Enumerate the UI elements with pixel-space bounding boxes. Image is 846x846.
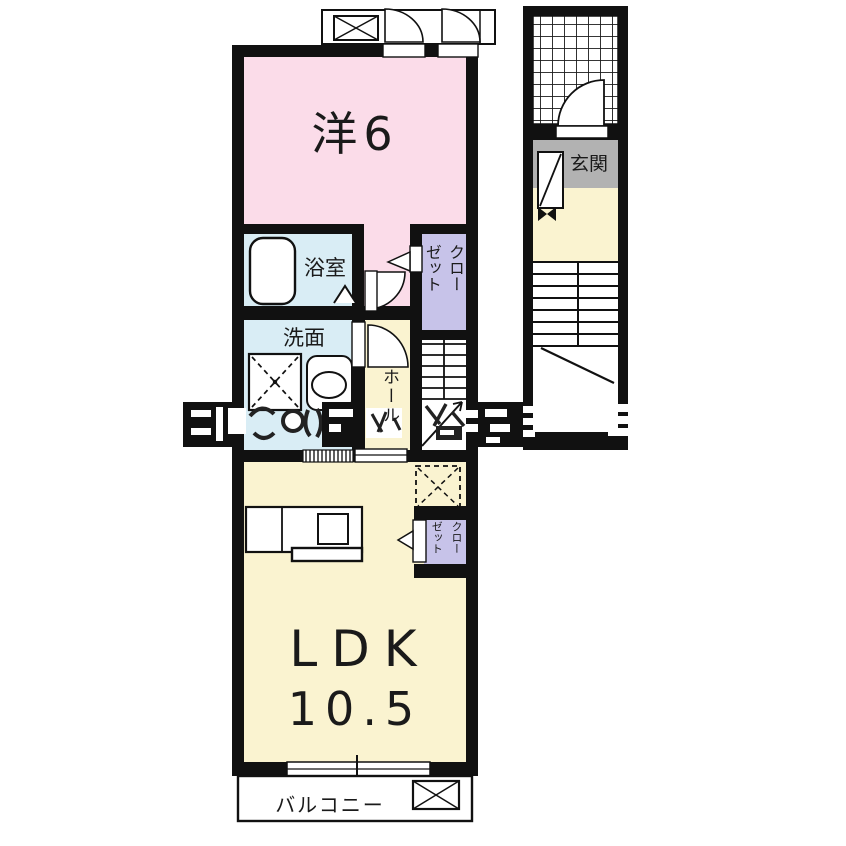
room-western-label: 洋6 [244, 98, 466, 164]
wall [523, 6, 533, 450]
wall [618, 6, 628, 450]
door-leaf [438, 44, 478, 57]
sink-bowl-icon [312, 372, 346, 398]
closet-bedroom-label-line2: ゼット [421, 244, 444, 336]
louver-window-hatch [303, 450, 353, 462]
room-hall-label: ホール [377, 368, 402, 450]
top-porch [322, 9, 495, 44]
wall [523, 6, 628, 16]
door-leaf [352, 322, 365, 367]
room-washroom-label: 洗面 [271, 322, 337, 352]
door-leaf [383, 44, 425, 57]
room-ldk-label: LDK [244, 620, 466, 678]
stairs-1f [533, 262, 618, 383]
entrance-door-leaf [556, 126, 608, 138]
door-leaf [365, 271, 377, 311]
kitchen-sink-icon [318, 514, 348, 544]
closet-ldk-label-line2: ゼット [426, 521, 446, 565]
room-ldk-size-label: 10.5 [244, 682, 466, 736]
kitchen-lower-counter [292, 548, 362, 561]
wall [232, 224, 364, 234]
wall [414, 564, 466, 578]
closet-ldk-label: クローゼット [426, 521, 466, 565]
bathtub-icon [250, 238, 295, 304]
room-entrance-label: 玄関 [560, 149, 618, 176]
closet-bedroom-label: クローゼット [419, 244, 467, 336]
wall [414, 506, 466, 520]
wall [232, 306, 410, 320]
room-bathroom-label: 浴室 [292, 252, 358, 282]
closet-bedroom-label-line1: クロー [444, 244, 467, 336]
room-balcony-label: バルコニー [250, 789, 410, 818]
washing-machine-dot [273, 380, 277, 384]
floor-plan-canvas: 洋6 浴室 洗面 ホール クローゼット クローゼット 玄関 LDK 10.5 バ… [0, 0, 846, 846]
closet-ldk-label-line1: クロー [446, 521, 466, 565]
closet-door-leaf [413, 520, 426, 562]
